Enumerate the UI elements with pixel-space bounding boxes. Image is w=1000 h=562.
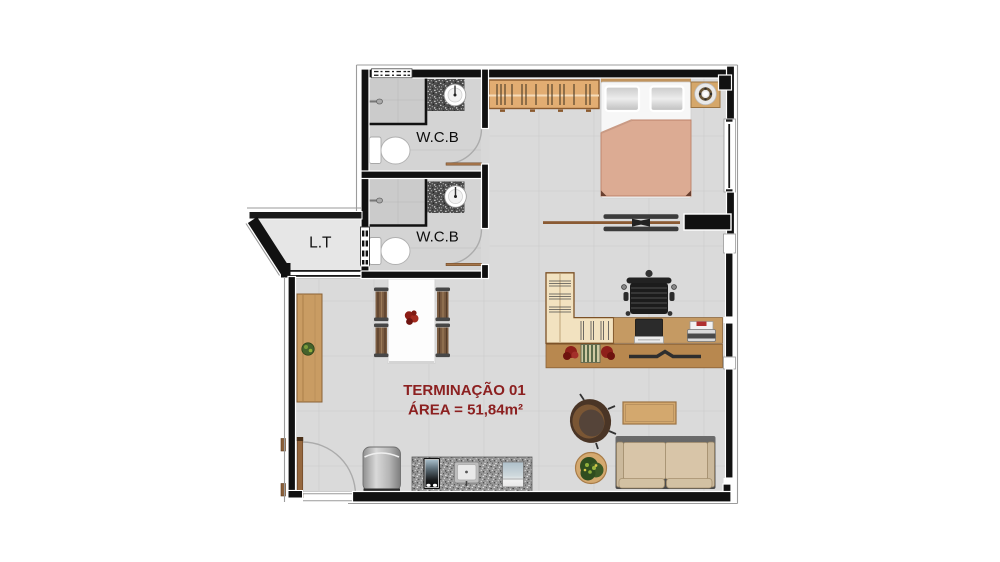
svg-text:W.C.B: W.C.B xyxy=(416,129,459,146)
svg-text:W.C.B: W.C.B xyxy=(416,229,459,246)
svg-text:TERMINAÇÃO 01: TERMINAÇÃO 01 xyxy=(403,381,526,399)
svg-text:ÁREA = 51,84m²: ÁREA = 51,84m² xyxy=(408,402,523,419)
svg-text:L.T: L.T xyxy=(309,235,332,252)
